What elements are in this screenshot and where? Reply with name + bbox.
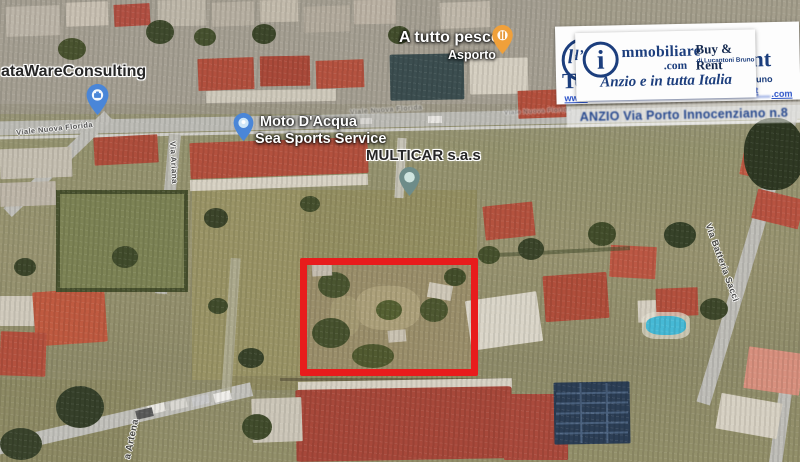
agency-address: ANZIO Via Porto Innocenziano n.8 bbox=[567, 101, 800, 127]
satellite-feature bbox=[664, 222, 696, 248]
satellite-feature bbox=[56, 386, 104, 428]
satellite-feature bbox=[56, 190, 60, 292]
satellite-feature bbox=[354, 0, 396, 24]
brand-tld: .com bbox=[664, 60, 688, 72]
satellite-feature bbox=[316, 59, 365, 89]
generic-place-pin-icon[interactable] bbox=[399, 167, 420, 196]
poi-sublabel-asporto: Asporto bbox=[448, 48, 496, 62]
satellite-feature bbox=[0, 147, 73, 179]
satellite-feature bbox=[542, 272, 609, 322]
watersports-pin-icon[interactable] bbox=[233, 113, 254, 141]
tagline: Anzio e in tutta Italia bbox=[576, 71, 756, 92]
satellite-feature bbox=[56, 288, 188, 292]
satellite-feature bbox=[470, 57, 529, 94]
satellite-feature bbox=[700, 298, 728, 320]
poi-label-multicar[interactable]: MULTICAR s.a.s bbox=[366, 147, 481, 164]
poi-label-moto-dacqua-line2[interactable]: Sea Sports Service bbox=[255, 131, 386, 147]
satellite-feature bbox=[743, 346, 800, 395]
satellite-feature bbox=[14, 258, 36, 276]
poi-label-moto-dacqua-line1[interactable]: Moto D'Acqua bbox=[260, 114, 357, 130]
satellite-feature bbox=[194, 28, 216, 46]
satellite-feature bbox=[252, 24, 276, 44]
highlight-rectangle bbox=[300, 258, 478, 376]
agency-watermark: l’ Te ent Bruno .net www. .com i l’ mmob… bbox=[555, 21, 800, 128]
satellite-feature bbox=[260, 0, 298, 22]
satellite-feature bbox=[260, 56, 311, 87]
satellite-feature bbox=[206, 89, 336, 103]
satellite-feature bbox=[204, 208, 228, 228]
satellite-feature bbox=[242, 414, 272, 440]
satellite-feature bbox=[302, 190, 477, 258]
url-suffix: .com bbox=[771, 89, 792, 99]
satellite-feature bbox=[212, 1, 255, 26]
brand-name: mmobiliare bbox=[621, 43, 701, 63]
poi-label-a-tutto-pesce[interactable]: A tutto pesce bbox=[399, 29, 500, 47]
satellite-feature bbox=[112, 246, 138, 268]
satellite-feature bbox=[440, 1, 491, 29]
satellite-feature bbox=[56, 190, 188, 194]
satellite-feature bbox=[295, 386, 512, 462]
satellite-feature bbox=[184, 190, 188, 292]
satellite-feature bbox=[56, 190, 188, 292]
logo-letter: i bbox=[597, 44, 605, 75]
satellite-feature bbox=[715, 393, 782, 439]
satellite-feature bbox=[0, 428, 42, 460]
satellite-feature bbox=[482, 201, 535, 240]
satellite-feature bbox=[238, 348, 264, 368]
restaurant-pin-icon[interactable] bbox=[492, 25, 513, 54]
satellite-feature bbox=[93, 134, 158, 165]
map-viewport[interactable]: Viale Nuova Florida Viale Nuova Florida … bbox=[0, 0, 800, 462]
satellite-feature bbox=[146, 20, 174, 44]
poi-label-dataware-consulting[interactable]: ataWareConsulting bbox=[1, 63, 146, 81]
satellite-feature bbox=[197, 57, 254, 91]
owner-label: di Lucantoni Bruno bbox=[697, 56, 755, 64]
satellite-feature bbox=[588, 222, 616, 246]
satellite-feature bbox=[66, 1, 109, 26]
watermark-front-card: i l’ mmobiliare .com Buy & Rent di Lucan… bbox=[575, 29, 756, 101]
satellite-feature bbox=[744, 118, 800, 190]
satellite-feature bbox=[518, 238, 544, 260]
immobiliare-logo-icon: i bbox=[582, 41, 619, 78]
satellite-feature bbox=[113, 3, 150, 27]
satellite-feature bbox=[0, 331, 47, 377]
satellite-feature bbox=[428, 116, 442, 123]
satellite-feature bbox=[208, 298, 228, 314]
logo-script: l’ bbox=[574, 48, 584, 65]
business-pin-icon[interactable] bbox=[86, 84, 109, 115]
satellite-feature bbox=[478, 246, 500, 264]
satellite-feature bbox=[360, 118, 372, 124]
satellite-feature bbox=[58, 38, 86, 60]
satellite-feature bbox=[646, 316, 686, 335]
satellite-feature bbox=[300, 196, 320, 212]
satellite-feature bbox=[480, 246, 630, 258]
satellite-feature bbox=[304, 5, 351, 33]
satellite-feature bbox=[5, 5, 60, 37]
satellite-feature bbox=[0, 181, 56, 207]
